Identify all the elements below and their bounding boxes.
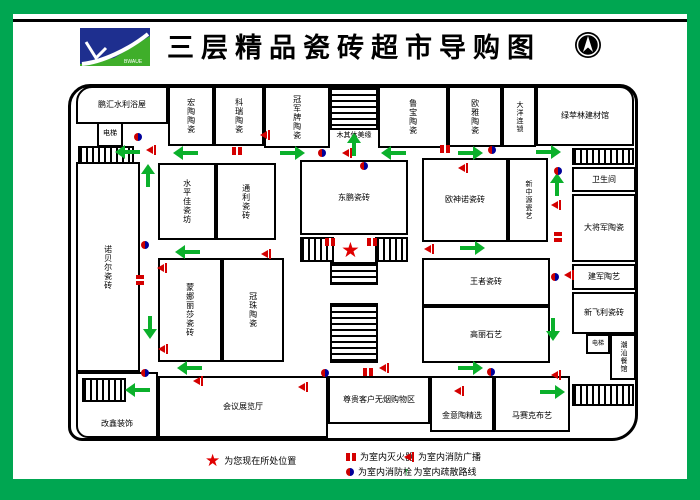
room-label: 大将军陶瓷 [584,223,624,232]
room-t6: 大洋连锁 [502,86,536,147]
room-label: 金意陶精选 [442,411,482,420]
legend-label: 为室内消防广播 [418,450,481,463]
room-label: 高丽石艺 [470,330,502,339]
room-label: 王者瓷砖 [470,277,502,286]
fire-broadcast-icon [379,363,389,373]
room-rc2: 新中源瓷艺 [508,158,548,242]
room-label: 宏陶陶瓷 [186,98,195,134]
evacuation-arrow-icon [458,151,480,155]
evacuation-arrow-icon [551,318,555,338]
room-m2: 通利瓷砖 [216,163,276,240]
room-br2: 高丽石艺 [422,306,550,363]
evacuation-route-icon: ↑ [404,466,410,478]
room-t5: 欧雅陶瓷 [448,86,502,147]
room-t2: 科瑞陶瓷 [214,86,264,146]
evacuation-arrow-icon [178,250,200,254]
fire-broadcast-icon [551,200,561,210]
room-label: 改鑫装饰 [101,419,133,428]
evacuation-arrow-icon [540,390,562,394]
fire-hydrant-icon [346,468,354,476]
fire-hydrant-icon [318,149,326,157]
fire-broadcast-icon [146,145,156,155]
fire-hydrant-icon [551,273,559,281]
escalator-top-center [330,86,378,130]
fire-broadcast-icon [157,263,167,273]
room-label: 水平佳瓷坊 [182,179,191,224]
staircase-bottom-right [572,384,634,406]
fire-broadcast-icon [298,382,308,392]
staircase-top-right [572,148,634,165]
fire-extinguisher-icon [232,147,242,155]
fire-broadcast-icon [261,249,271,259]
room-label: 新飞利瓷砖 [584,308,624,317]
fire-extinguisher-icon [136,275,144,285]
room-center: 东鹏瓷砖 [300,160,408,235]
room-toilet: 卫生间 [572,167,636,192]
fire-hydrant-icon [487,368,495,376]
legend-route: ↑ 为室内疏散路线 [404,465,477,478]
room-label: 蒙娜丽莎瓷砖 [185,283,194,337]
room-label: 鲁宝陶瓷 [408,99,417,135]
legend-label: 为室内疏散路线 [414,465,477,478]
room-label: 欧雅陶瓷 [470,99,479,135]
fire-extinguisher-icon [363,368,373,376]
fire-broadcast-icon [342,148,352,158]
fire-broadcast-icon [458,163,468,173]
fire-hydrant-icon [488,146,496,154]
room-b1: 尊贵客户无烟购物区 [328,376,430,424]
room-label: 电梯 [592,341,604,348]
room-elevator-bottomright: 电梯 [586,334,610,354]
fire-broadcast-icon [454,386,464,396]
fire-extinguisher-icon [346,453,356,461]
room-label: 会议展览厅 [223,402,263,411]
fire-extinguisher-icon [554,232,562,242]
room-left-tall: 诺贝尔瓷砖 [76,162,140,372]
fire-extinguisher-icon [440,145,450,153]
room-r2: 建军陶艺 [572,264,636,290]
logo-graphic: BWAUE [80,28,150,66]
fire-hydrant-icon [141,369,149,377]
room-elevator-topleft: 电梯 [97,122,123,147]
evacuation-arrow-icon [148,316,152,336]
fire-extinguisher-icon [367,238,377,246]
evacuation-arrow-icon [555,176,559,196]
evacuation-arrow-icon [146,167,150,187]
company-logo: BWAUE [80,28,150,66]
legend-current-location: ★ 为您现在所处位置 [205,452,296,469]
room-label: 建军陶艺 [588,272,620,281]
room-label: 潮汕餐馆 [619,341,627,373]
legend-broadcast: 为室内消防广播 [404,450,481,463]
room-label: 新中源瓷艺 [524,180,532,220]
evacuation-arrow-icon [180,366,202,370]
compass-north-icon [574,31,602,59]
fire-hydrant-icon [141,241,149,249]
room-r3: 新飞利瓷砖 [572,292,636,334]
fire-broadcast-icon [404,452,414,462]
fire-broadcast-icon [158,344,168,354]
evacuation-arrow-icon [352,136,356,156]
evacuation-arrow-icon [460,246,482,250]
fire-broadcast-icon [564,270,574,280]
room-label: 大洋连锁 [515,101,523,133]
fire-hydrant-icon [360,162,368,170]
room-bm2: 冠珠陶瓷 [222,258,284,362]
room-br1: 王者瓷砖 [422,258,550,306]
fire-broadcast-icon [551,370,561,380]
fire-broadcast-icon [193,376,203,386]
legend-label: 为您现在所处位置 [224,454,296,467]
evacuation-arrow-icon [118,150,140,154]
current-location-star-icon: ★ [341,240,360,261]
room-label: 马赛克布艺 [512,411,552,420]
room-t7: 绿苹林建材馆 [536,86,634,146]
room-label: 尊贵客户无烟购物区 [343,395,415,404]
staircase-center-lower [330,303,378,363]
logo-text: BWAUE [124,59,143,65]
room-label: 冠军牌陶瓷 [292,95,301,140]
room-b2: 金意陶精选 [430,376,494,432]
fire-broadcast-icon [260,130,270,140]
room-label: 欧神诺瓷砖 [445,195,485,204]
room-label: 东鹏瓷砖 [338,193,370,202]
room-t3: 冠军牌陶瓷 [264,86,330,148]
evacuation-arrow-icon [458,366,480,370]
room-label: 冠珠陶瓷 [248,292,257,328]
room-label: 诺贝尔瓷砖 [103,245,112,290]
room-label: 科瑞陶瓷 [234,98,243,134]
current-location-star-icon: ★ [205,452,220,469]
room-label: 电梯 [103,130,117,138]
legend-hydrant: 为室内消防栓 [346,465,412,478]
evacuation-arrow-icon [176,151,198,155]
fire-extinguisher-icon [325,238,335,246]
page-title: 三层精品瓷砖超市导购图 [158,24,550,66]
fire-hydrant-icon [554,167,562,175]
room-chaoshan: 潮汕餐馆 [610,334,636,380]
staircase-center-upper [330,262,378,285]
room-label: 绿苹林建材馆 [561,111,609,120]
escalator-center-right [375,237,408,262]
fire-hydrant-icon [134,133,142,141]
floor-guide-page: { "header": { "title": "三层精品瓷砖超市导购图", "l… [0,0,700,500]
room-label: 通利瓷砖 [241,184,250,220]
room-m1: 水平佳瓷坊 [158,163,216,240]
fire-hydrant-icon [321,369,329,377]
evacuation-arrow-icon [536,150,558,154]
fire-broadcast-icon [424,244,434,254]
room-label: 鹏汇水利浴屋 [98,100,146,109]
room-label: 卫生间 [592,175,616,184]
room-r1: 大将军陶瓷 [572,194,636,262]
room-t4: 鲁宝陶瓷 [378,86,448,148]
evacuation-arrow-icon [280,151,302,155]
header-rule [13,19,687,22]
room-t1: 宏陶陶瓷 [168,86,214,146]
evacuation-arrow-icon [128,388,150,392]
room-penghui: 鹏汇水利浴屋 [76,86,168,124]
evacuation-arrow-icon [384,151,406,155]
